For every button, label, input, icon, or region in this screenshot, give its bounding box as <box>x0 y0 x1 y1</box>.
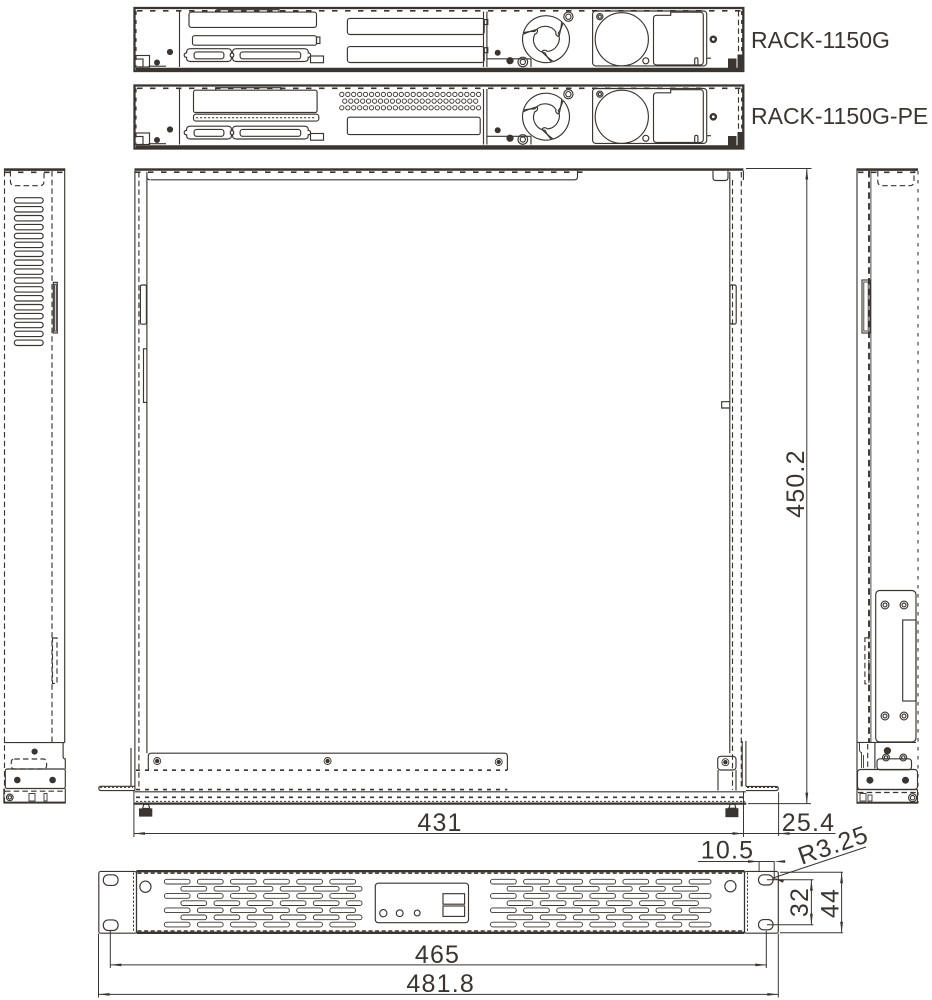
svg-text:RACK-1150G-PE: RACK-1150G-PE <box>751 103 928 129</box>
svg-text:10.5: 10.5 <box>701 837 754 865</box>
svg-text:431: 431 <box>417 809 462 837</box>
svg-text:465: 465 <box>415 941 460 969</box>
svg-text:481.8: 481.8 <box>406 970 475 998</box>
svg-text:RACK-1150G: RACK-1150G <box>751 27 890 53</box>
svg-text:44: 44 <box>817 888 845 918</box>
svg-text:450.2: 450.2 <box>782 449 810 518</box>
svg-text:32: 32 <box>786 887 814 917</box>
